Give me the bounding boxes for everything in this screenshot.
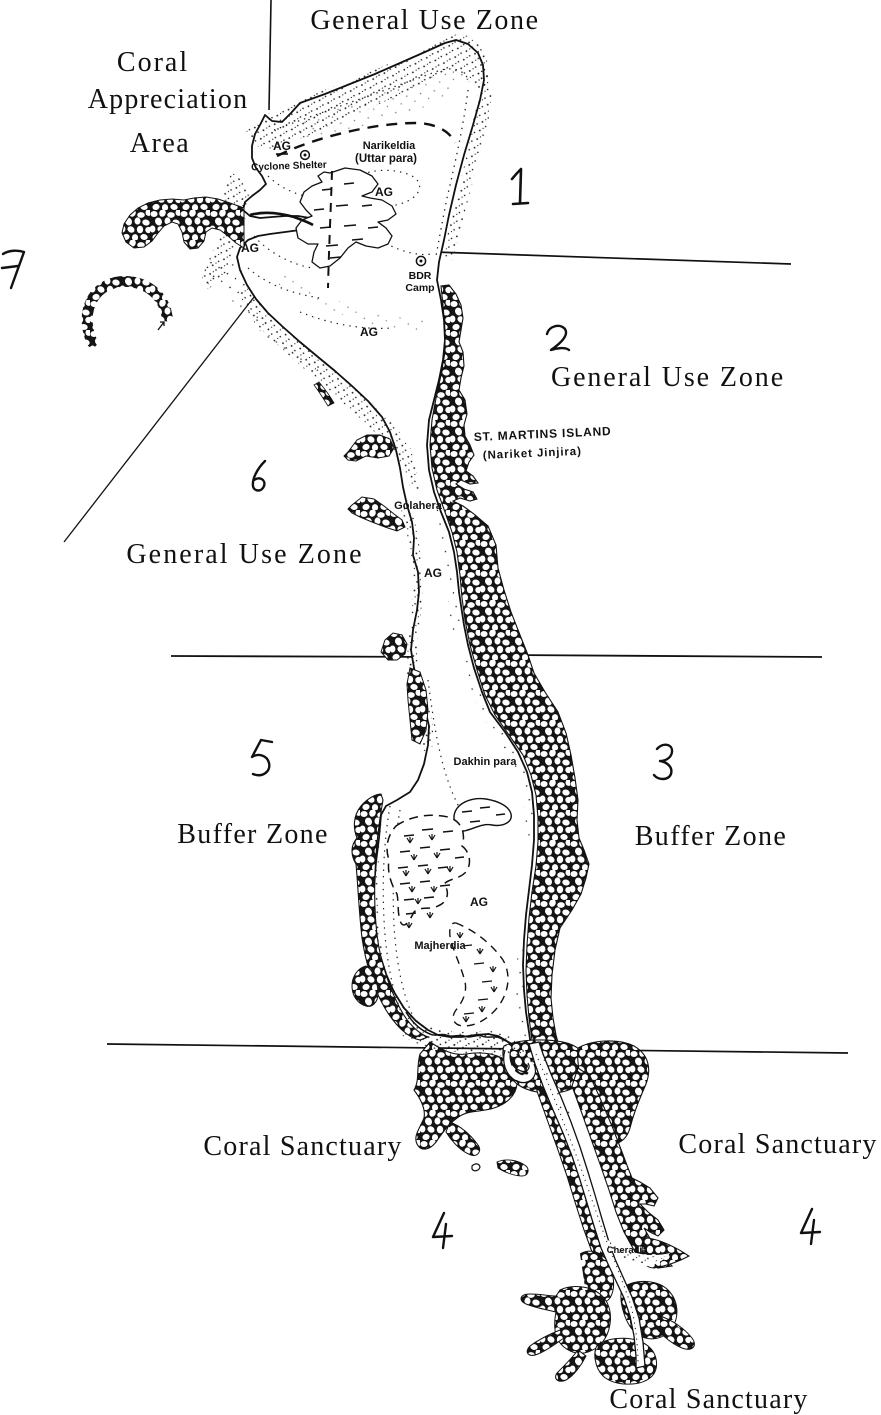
svg-text:Cheradia: Cheradia	[607, 1245, 648, 1256]
svg-text:Coral Sanctuary: Coral Sanctuary	[203, 1131, 402, 1162]
svg-text:Coral Sanctuary: Coral Sanctuary	[609, 1384, 808, 1415]
svg-text:Camp: Camp	[405, 282, 434, 294]
svg-text:Majherdia: Majherdia	[414, 940, 466, 952]
svg-text:Coral Sanctuary: Coral Sanctuary	[678, 1129, 877, 1160]
svg-text:Appreciation: Appreciation	[88, 84, 249, 115]
svg-text:BDR: BDR	[409, 270, 432, 282]
svg-text:AG: AG	[273, 139, 291, 153]
svg-text:General Use Zone: General Use Zone	[126, 539, 363, 570]
svg-text:Golahera: Golahera	[394, 500, 443, 512]
svg-text:Area: Area	[130, 128, 190, 159]
svg-text:Dakhin para: Dakhin para	[454, 756, 518, 768]
svg-text:(Uttar para): (Uttar para)	[355, 153, 417, 165]
svg-text:Buffer Zone: Buffer Zone	[635, 821, 788, 852]
svg-text:General Use Zone: General Use Zone	[551, 362, 785, 393]
svg-text:AG: AG	[375, 185, 393, 199]
svg-text:AG: AG	[360, 325, 378, 339]
svg-text:Narikeldia: Narikeldia	[363, 140, 416, 152]
svg-text:General Use Zone: General Use Zone	[310, 5, 539, 36]
svg-text:Coral: Coral	[117, 47, 189, 78]
svg-text:AG: AG	[424, 566, 442, 580]
svg-text:AG: AG	[241, 241, 259, 255]
svg-text:AG: AG	[470, 895, 488, 909]
svg-text:Buffer Zone: Buffer Zone	[177, 819, 328, 850]
